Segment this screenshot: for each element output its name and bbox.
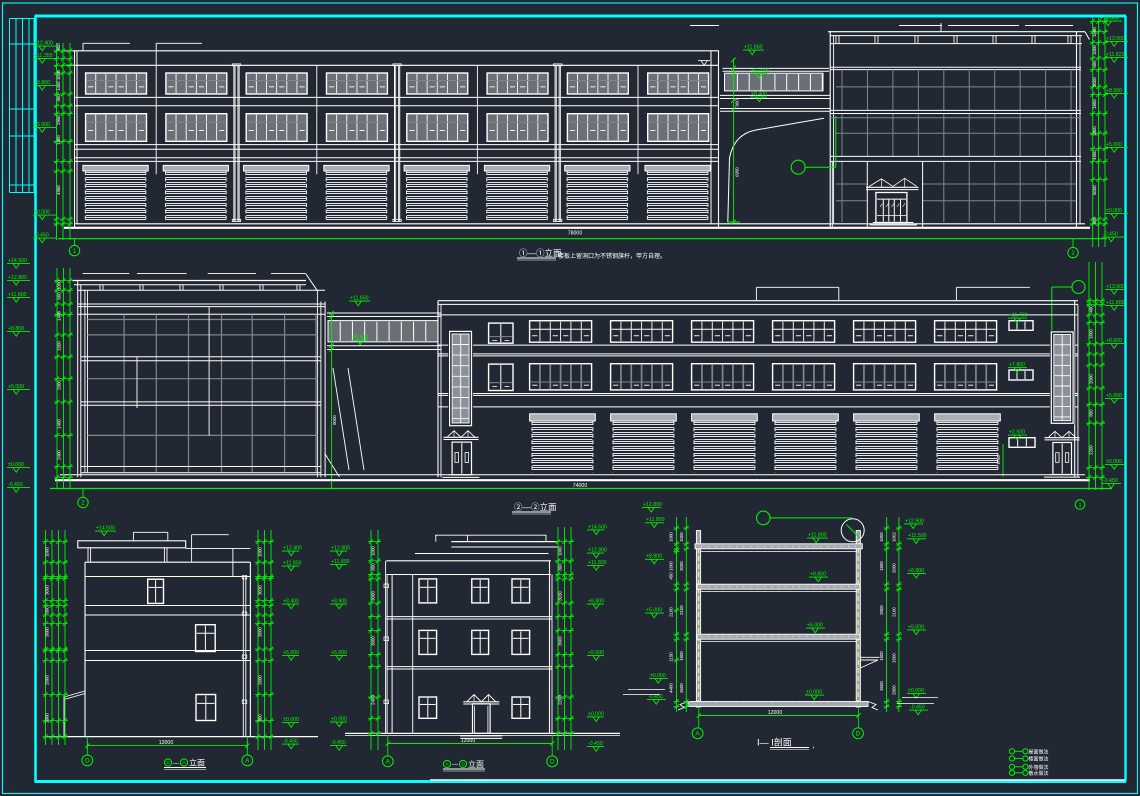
svg-text:1800: 1800 xyxy=(679,651,684,661)
svg-text:3600: 3600 xyxy=(45,627,50,637)
svg-text:+5.000: +5.000 xyxy=(1106,142,1122,148)
svg-text:3600: 3600 xyxy=(879,681,884,691)
svg-text:800: 800 xyxy=(371,563,376,571)
svg-text:+2.500: +2.500 xyxy=(1009,430,1025,436)
svg-text:+8.900: +8.900 xyxy=(331,599,347,605)
svg-text:900: 900 xyxy=(735,99,740,107)
svg-text:+11.650: +11.650 xyxy=(350,296,369,302)
svg-text:6950: 6950 xyxy=(735,167,740,177)
svg-text:1500: 1500 xyxy=(57,341,62,351)
svg-text:+8.400: +8.400 xyxy=(283,599,299,605)
svg-text:±0.000: ±0.000 xyxy=(908,688,924,694)
svg-text:3600: 3600 xyxy=(679,683,684,693)
svg-text:3000: 3000 xyxy=(371,591,376,601)
svg-text:+11.800: +11.800 xyxy=(331,559,350,565)
svg-text:1400: 1400 xyxy=(56,135,61,145)
svg-text:460: 460 xyxy=(1089,305,1094,313)
svg-text:+7.800: +7.800 xyxy=(1009,362,1025,368)
svg-text:300: 300 xyxy=(45,606,50,614)
svg-text:楼板上留洞口为不锈钢旗杆，甲方自理。: 楼板上留洞口为不锈钢旗杆，甲方自理。 xyxy=(558,252,666,260)
svg-text:12000: 12000 xyxy=(461,738,476,744)
svg-text:1000: 1000 xyxy=(371,546,376,556)
svg-text:-0.450: -0.450 xyxy=(648,694,663,700)
svg-text:1000: 1000 xyxy=(258,547,263,557)
svg-text:2600: 2600 xyxy=(45,675,50,685)
svg-text:+14.500: +14.500 xyxy=(96,526,115,532)
svg-text:-0.450: -0.450 xyxy=(910,705,925,711)
svg-text:1: 1 xyxy=(1078,502,1081,508)
svg-text:3000: 3000 xyxy=(1092,77,1097,87)
svg-text:+8.400: +8.400 xyxy=(352,335,368,341)
svg-text:+11.800: +11.800 xyxy=(808,533,827,539)
svg-text:4950: 4950 xyxy=(56,185,61,195)
svg-text:2100: 2100 xyxy=(669,607,674,617)
svg-text:+8.900: +8.900 xyxy=(646,554,662,560)
svg-text:2000: 2000 xyxy=(892,563,897,573)
svg-text:1000: 1000 xyxy=(679,532,684,542)
svg-text:+12.800: +12.800 xyxy=(331,546,350,552)
svg-text:+14.600: +14.600 xyxy=(1100,16,1119,22)
svg-text:-0.450: -0.450 xyxy=(283,739,298,745)
svg-text:+12.400: +12.400 xyxy=(34,41,53,47)
svg-text:+8.800: +8.800 xyxy=(34,80,50,86)
svg-text:A: A xyxy=(445,762,448,767)
svg-text:+5.000: +5.000 xyxy=(331,650,347,656)
svg-text:2100: 2100 xyxy=(892,607,897,617)
svg-text:A: A xyxy=(182,760,185,765)
svg-text:1900: 1900 xyxy=(1092,150,1097,160)
svg-text:2000: 2000 xyxy=(1089,374,1094,384)
svg-text:1400: 1400 xyxy=(57,419,62,429)
svg-text:-0.450: -0.450 xyxy=(1103,232,1118,238)
svg-text:+5.000: +5.000 xyxy=(807,623,823,629)
svg-text:5000: 5000 xyxy=(1092,185,1097,195)
svg-text:1500: 1500 xyxy=(1092,126,1097,136)
svg-text:1000: 1000 xyxy=(57,280,62,290)
svg-text:2200: 2200 xyxy=(1089,445,1094,455)
svg-text:D: D xyxy=(85,758,90,765)
svg-text:1800: 1800 xyxy=(879,561,884,571)
svg-text:+11.400: +11.400 xyxy=(751,68,770,74)
svg-text:1000: 1000 xyxy=(1092,45,1097,55)
svg-text:3000: 3000 xyxy=(45,585,50,595)
svg-text:900: 900 xyxy=(56,43,61,51)
svg-text:3030: 3030 xyxy=(258,585,263,595)
svg-text:+8.600: +8.600 xyxy=(1106,338,1122,344)
svg-text:±0.000: ±0.000 xyxy=(650,673,666,679)
svg-text:1600: 1600 xyxy=(669,561,674,571)
svg-text:1400: 1400 xyxy=(57,311,62,321)
svg-text:2100: 2100 xyxy=(679,605,684,615)
svg-text:4400: 4400 xyxy=(669,683,674,693)
svg-text:300: 300 xyxy=(1092,60,1097,68)
svg-text:+14.500: +14.500 xyxy=(588,524,607,530)
svg-text:1750: 1750 xyxy=(996,455,1001,465)
svg-text:A: A xyxy=(695,731,700,738)
svg-text:+5.000: +5.000 xyxy=(908,624,924,630)
svg-text:±0.000: ±0.000 xyxy=(588,711,604,717)
svg-text:800: 800 xyxy=(558,563,563,571)
svg-text:散水做法: 散水做法 xyxy=(1029,770,1049,777)
svg-text:—: — xyxy=(452,763,458,769)
svg-text:—: — xyxy=(173,761,179,767)
svg-text:+5.000: +5.000 xyxy=(588,650,604,656)
svg-text:800: 800 xyxy=(1089,409,1094,417)
svg-text:450: 450 xyxy=(669,572,674,580)
svg-text:78000: 78000 xyxy=(568,230,583,236)
svg-text:+12.800: +12.800 xyxy=(588,548,607,554)
svg-text:2950: 2950 xyxy=(56,115,61,125)
svg-text:1000: 1000 xyxy=(45,547,50,557)
svg-text:1150: 1150 xyxy=(669,652,674,662)
svg-text:②—②立面: ②—②立面 xyxy=(514,502,557,512)
svg-text:+5.000: +5.000 xyxy=(283,650,299,656)
svg-text:74000: 74000 xyxy=(573,483,588,489)
svg-text:+5.000: +5.000 xyxy=(8,384,24,390)
svg-text:+8.400: +8.400 xyxy=(751,92,767,98)
svg-text:+11.822: +11.822 xyxy=(1106,52,1125,58)
svg-text:+12.400: +12.400 xyxy=(283,546,302,552)
svg-text:+11.500: +11.500 xyxy=(908,533,927,539)
svg-text:A: A xyxy=(386,759,391,766)
svg-text:立面: 立面 xyxy=(468,759,484,769)
svg-text:+8.800: +8.800 xyxy=(588,599,604,605)
svg-text:外墙做法: 外墙做法 xyxy=(1029,764,1049,771)
svg-text:±0.000: ±0.000 xyxy=(1106,208,1122,214)
svg-text:2000: 2000 xyxy=(45,713,50,723)
svg-text:±0.000: ±0.000 xyxy=(283,717,299,723)
svg-text:A: A xyxy=(245,758,250,765)
svg-text:±0.000: ±0.000 xyxy=(1106,459,1122,465)
svg-text:+5.000: +5.000 xyxy=(34,122,50,128)
svg-text:±0.000: ±0.000 xyxy=(806,690,822,696)
svg-text:600: 600 xyxy=(57,292,62,300)
svg-text:1000: 1000 xyxy=(669,532,674,542)
svg-text:屋面做法: 屋面做法 xyxy=(1029,748,1049,755)
svg-text:-0.450: -0.450 xyxy=(588,741,603,747)
svg-text:±0.000: ±0.000 xyxy=(8,462,24,468)
svg-text:+8.800: +8.800 xyxy=(810,572,826,578)
svg-text:+13.000: +13.000 xyxy=(1106,36,1125,42)
svg-text:+5.000: +5.000 xyxy=(1106,393,1122,399)
svg-text:2900: 2900 xyxy=(57,380,62,390)
svg-text:①—①立面: ①—①立面 xyxy=(519,248,562,258)
svg-text:1600: 1600 xyxy=(1089,329,1094,339)
svg-text:12000: 12000 xyxy=(768,710,783,716)
svg-text:+8.800: +8.800 xyxy=(8,326,24,332)
svg-text:1800: 1800 xyxy=(1092,99,1097,109)
svg-text:2600: 2600 xyxy=(258,675,263,685)
svg-text:+12.900: +12.900 xyxy=(905,518,924,524)
svg-text:+11.700: +11.700 xyxy=(1009,313,1028,319)
svg-text:3600: 3600 xyxy=(558,636,563,646)
svg-text:±0.000: ±0.000 xyxy=(34,210,50,216)
svg-text:Ⅰ— Ⅰ剖面: Ⅰ— Ⅰ剖面 xyxy=(757,737,792,748)
svg-text:2000: 2000 xyxy=(679,561,684,571)
svg-text:-0.450: -0.450 xyxy=(8,482,23,488)
svg-text:1600: 1600 xyxy=(892,653,897,663)
svg-text:立面: 立面 xyxy=(189,758,205,768)
svg-text:2200: 2200 xyxy=(558,695,563,705)
svg-text:-0.450: -0.450 xyxy=(331,740,346,746)
svg-text:±0.000: ±0.000 xyxy=(331,717,347,723)
svg-text:2800: 2800 xyxy=(892,685,897,695)
svg-text:+5.000: +5.000 xyxy=(646,608,662,614)
svg-text:1650: 1650 xyxy=(1092,27,1097,37)
svg-text:-0.450: -0.450 xyxy=(1103,478,1118,484)
svg-text:+11.650: +11.650 xyxy=(744,45,763,51)
svg-text:+11.800: +11.800 xyxy=(283,561,302,567)
svg-text:1000: 1000 xyxy=(558,546,563,556)
svg-text:，: ， xyxy=(812,744,818,750)
svg-text:+11.355: +11.355 xyxy=(34,53,53,59)
svg-text:+12.800: +12.800 xyxy=(8,275,27,281)
svg-text:3000: 3000 xyxy=(56,70,61,80)
svg-text:12000: 12000 xyxy=(159,740,174,746)
svg-text:D: D xyxy=(550,759,555,766)
svg-text:1400: 1400 xyxy=(56,81,61,91)
svg-text:+8.800: +8.800 xyxy=(908,568,924,574)
svg-text:3030: 3030 xyxy=(558,591,563,601)
svg-text:3600: 3600 xyxy=(371,636,376,646)
svg-text:2400: 2400 xyxy=(57,450,62,460)
svg-text:300: 300 xyxy=(1092,217,1097,225)
svg-text:1002: 1002 xyxy=(892,532,897,542)
svg-text:1000: 1000 xyxy=(879,532,884,542)
svg-text:+11.800: +11.800 xyxy=(1106,300,1125,306)
svg-text:900: 900 xyxy=(56,94,61,102)
svg-text:2800: 2800 xyxy=(879,605,884,615)
svg-text:1800: 1800 xyxy=(879,651,884,661)
svg-text:8000: 8000 xyxy=(332,415,337,425)
svg-text:500: 500 xyxy=(258,714,263,722)
svg-text:+8.900: +8.900 xyxy=(1106,88,1122,94)
svg-text:楼面做法: 楼面做法 xyxy=(1029,756,1049,763)
svg-text:+11.800: +11.800 xyxy=(8,292,27,298)
svg-text:+14.500: +14.500 xyxy=(8,258,27,264)
svg-text:+12.800: +12.800 xyxy=(643,502,662,508)
svg-text:+11.800: +11.800 xyxy=(588,560,607,566)
svg-text:3600: 3600 xyxy=(258,627,263,637)
svg-text:2400: 2400 xyxy=(371,695,376,705)
svg-text:+11.800: +11.800 xyxy=(646,517,665,523)
svg-text:D: D xyxy=(856,731,861,738)
svg-text:+13.600: +13.600 xyxy=(1106,284,1125,290)
svg-text:-0.450: -0.450 xyxy=(34,233,49,239)
